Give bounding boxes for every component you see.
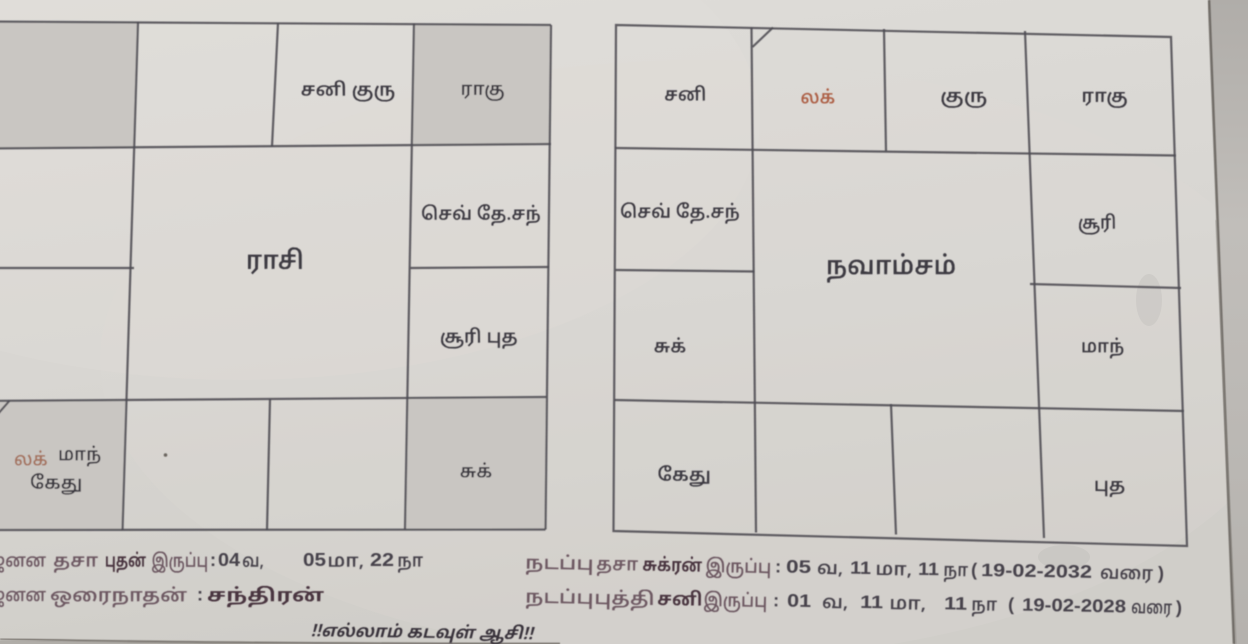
- svg-text:11: 11: [850, 558, 871, 578]
- svg-text::: :: [197, 585, 203, 605]
- svg-text:05: 05: [786, 557, 811, 577]
- svg-text:): ): [1176, 597, 1182, 617]
- svg-text:): ): [1158, 563, 1164, 583]
- svg-text:(: (: [971, 560, 977, 580]
- svg-text::: :: [775, 556, 781, 576]
- svg-text:22: 22: [370, 550, 394, 570]
- svg-text:11: 11: [944, 593, 967, 613]
- svg-text:(: (: [1008, 594, 1014, 614]
- svg-text:19-02-2028: 19-02-2028: [1022, 595, 1126, 617]
- svg-text::: :: [210, 550, 216, 570]
- svg-text:19-02-2032: 19-02-2032: [981, 560, 1092, 582]
- svg-text::: :: [773, 590, 779, 610]
- svg-text:05: 05: [303, 550, 326, 570]
- svg-text:01: 01: [787, 591, 811, 611]
- svg-text:04: 04: [218, 550, 240, 570]
- svg-text:11: 11: [918, 559, 939, 579]
- svg-text:11: 11: [860, 592, 883, 612]
